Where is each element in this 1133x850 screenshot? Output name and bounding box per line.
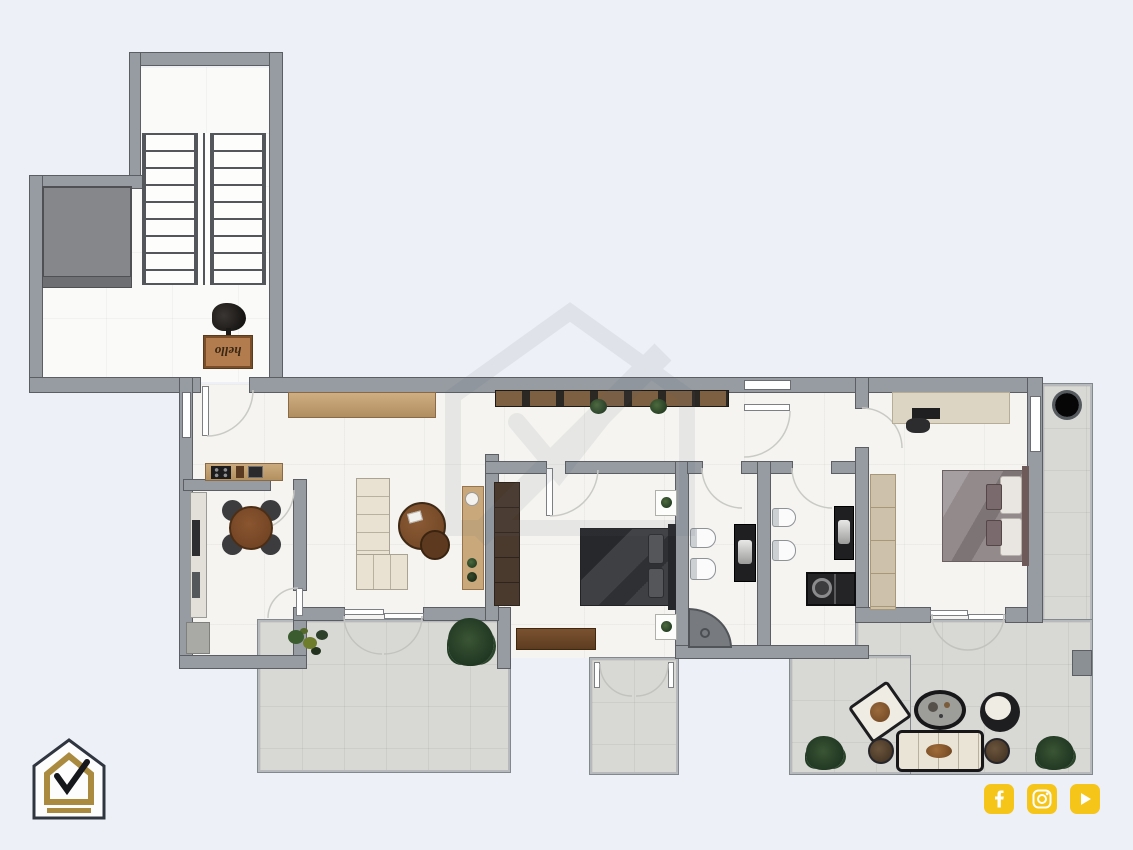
closet bbox=[870, 474, 896, 610]
kitchen-appliance bbox=[192, 520, 200, 556]
bidet bbox=[772, 508, 796, 527]
desk-chair bbox=[906, 418, 930, 433]
kitchen-item bbox=[236, 466, 244, 478]
youtube-icon[interactable] bbox=[1070, 784, 1100, 814]
sofa-pillow bbox=[926, 744, 952, 758]
toilet bbox=[690, 558, 716, 580]
terrace-flowers bbox=[288, 630, 304, 644]
terrace-bush bbox=[448, 618, 494, 666]
house-check-logo bbox=[30, 736, 108, 822]
table-decor bbox=[928, 702, 938, 712]
house-check-watermark bbox=[425, 300, 715, 550]
vanity-sink bbox=[838, 520, 850, 544]
console-plant bbox=[467, 558, 477, 568]
terrace-bush bbox=[806, 736, 844, 770]
outdoor-side-table bbox=[868, 738, 894, 764]
kitchen-cabinet-low bbox=[186, 622, 210, 654]
kitchen-sink bbox=[248, 466, 263, 478]
kitchen-appliance bbox=[192, 572, 200, 598]
sideboard bbox=[288, 392, 436, 418]
outdoor-side-table bbox=[984, 738, 1010, 764]
shower-drain bbox=[700, 628, 710, 638]
bed-cushion bbox=[986, 484, 1002, 510]
sofa-chaise bbox=[356, 554, 408, 590]
washing-machine-drum bbox=[812, 578, 832, 598]
floor-plan-canvas: hello bbox=[0, 0, 1133, 850]
instagram-icon[interactable] bbox=[1027, 784, 1057, 814]
armchair-pillow bbox=[870, 702, 890, 722]
dining-table bbox=[229, 506, 273, 550]
round-chair-cushion bbox=[985, 696, 1011, 720]
nightstand-plant bbox=[661, 621, 672, 632]
facebook-icon[interactable] bbox=[984, 784, 1014, 814]
cooktop bbox=[211, 466, 231, 479]
outdoor-table bbox=[914, 690, 966, 730]
bed-pillow bbox=[1000, 476, 1022, 514]
toilet bbox=[772, 540, 796, 561]
terrace-bush bbox=[1036, 736, 1074, 770]
console-plant bbox=[467, 572, 477, 582]
bed-pillow bbox=[648, 568, 664, 598]
bed-headboard bbox=[1022, 466, 1029, 566]
dresser bbox=[516, 628, 596, 650]
bed-pillow bbox=[1000, 518, 1022, 556]
vanity-sink bbox=[738, 540, 752, 564]
bed-cushion bbox=[986, 520, 1002, 546]
